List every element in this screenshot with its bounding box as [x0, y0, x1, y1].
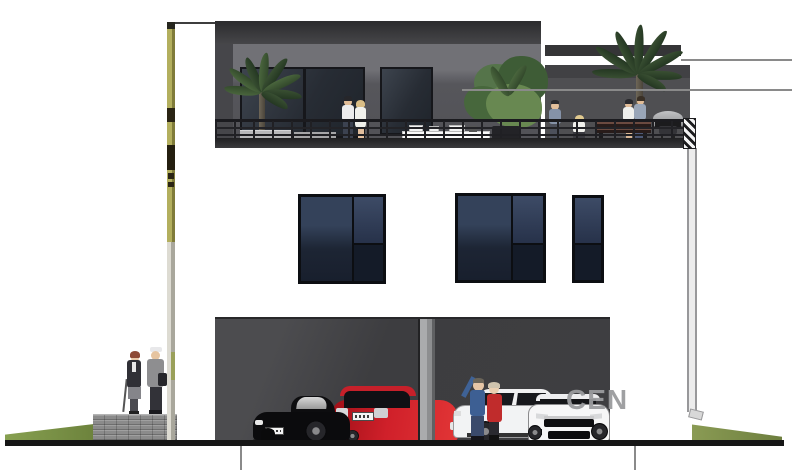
bottom-leader-line-right [634, 446, 636, 470]
terrace-leader-line [462, 89, 792, 91]
roof-parapet-left [215, 21, 541, 44]
headlight [454, 411, 461, 416]
terrace-railing [215, 119, 690, 138]
headlight [255, 420, 263, 425]
window-large-center [455, 193, 546, 283]
black-roadster [253, 394, 350, 442]
couple-on-left-walkway [124, 346, 170, 415]
grass-bank-left [5, 422, 93, 440]
garage-opening [215, 317, 610, 440]
bottom-leader-line-left [240, 446, 242, 470]
wheel [528, 425, 542, 440]
red-hatchback [332, 386, 458, 442]
terrace-slab-edge [215, 138, 690, 148]
downspout-shoe [688, 408, 704, 420]
garage-pillar [418, 319, 435, 442]
wheel [305, 420, 327, 442]
ground-line [5, 440, 784, 446]
license-plate [352, 412, 374, 421]
hatched-corner-post [683, 118, 696, 149]
elevation-drawing: CEN [0, 0, 792, 470]
roof-leader-line [173, 22, 217, 24]
upper-right-leader-line [681, 59, 792, 61]
downspout [687, 148, 697, 412]
taillight [374, 408, 388, 418]
couple-in-garage [465, 374, 507, 442]
window-large-left [298, 194, 386, 284]
window-narrow-right [572, 195, 604, 283]
wheel [591, 423, 608, 440]
grass-bank-right [692, 422, 782, 440]
watermark: CEN [566, 384, 628, 416]
masonry-retaining-wall [93, 414, 177, 441]
